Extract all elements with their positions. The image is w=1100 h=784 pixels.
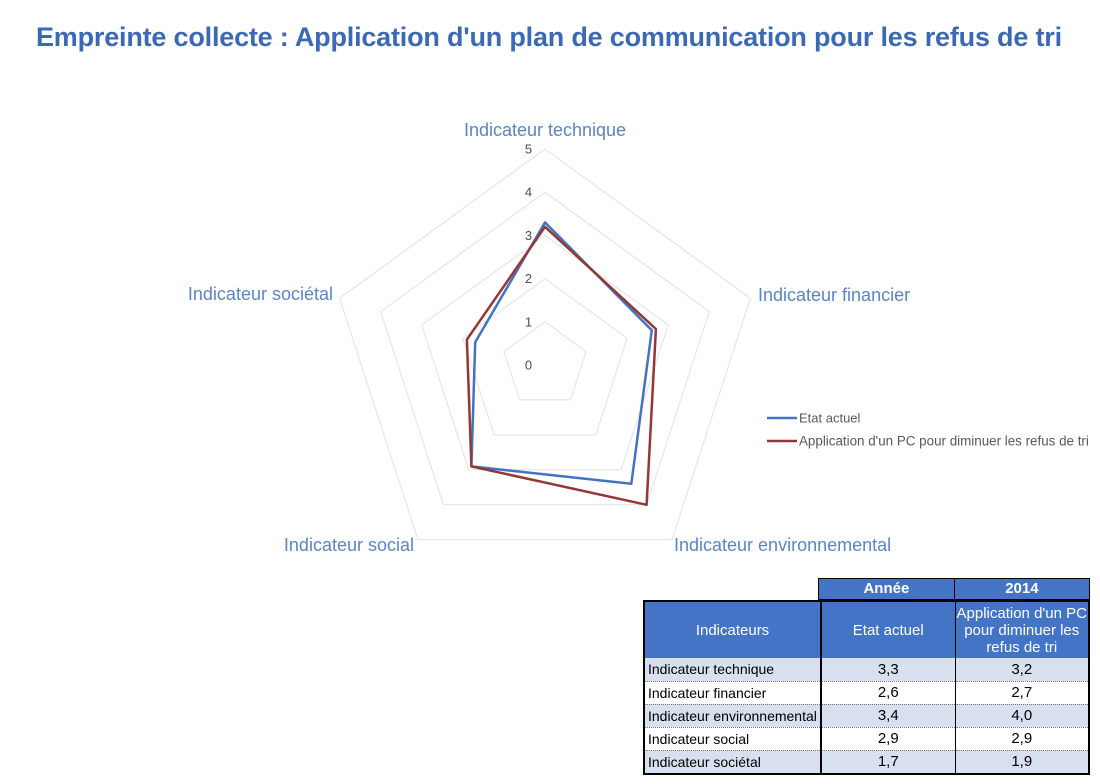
svg-text:Indicateur technique: Indicateur technique	[464, 120, 626, 140]
svg-text:2: 2	[525, 271, 532, 286]
svg-text:3: 3	[525, 228, 532, 243]
svg-text:Indicateur environnemental: Indicateur environnemental	[674, 535, 891, 555]
svg-text:4: 4	[525, 185, 532, 200]
svg-text:Etat actuel: Etat actuel	[799, 411, 861, 426]
svg-text:1: 1	[525, 314, 532, 329]
svg-text:0: 0	[525, 358, 532, 373]
svg-text:5: 5	[525, 142, 532, 157]
svg-text:Indicateur financier: Indicateur financier	[758, 285, 910, 305]
svg-text:Indicateur social: Indicateur social	[284, 535, 414, 555]
svg-text:Indicateur sociétal: Indicateur sociétal	[188, 284, 333, 304]
svg-text:Application d'un PC pour dimin: Application d'un PC pour diminuer les re…	[799, 434, 1089, 449]
